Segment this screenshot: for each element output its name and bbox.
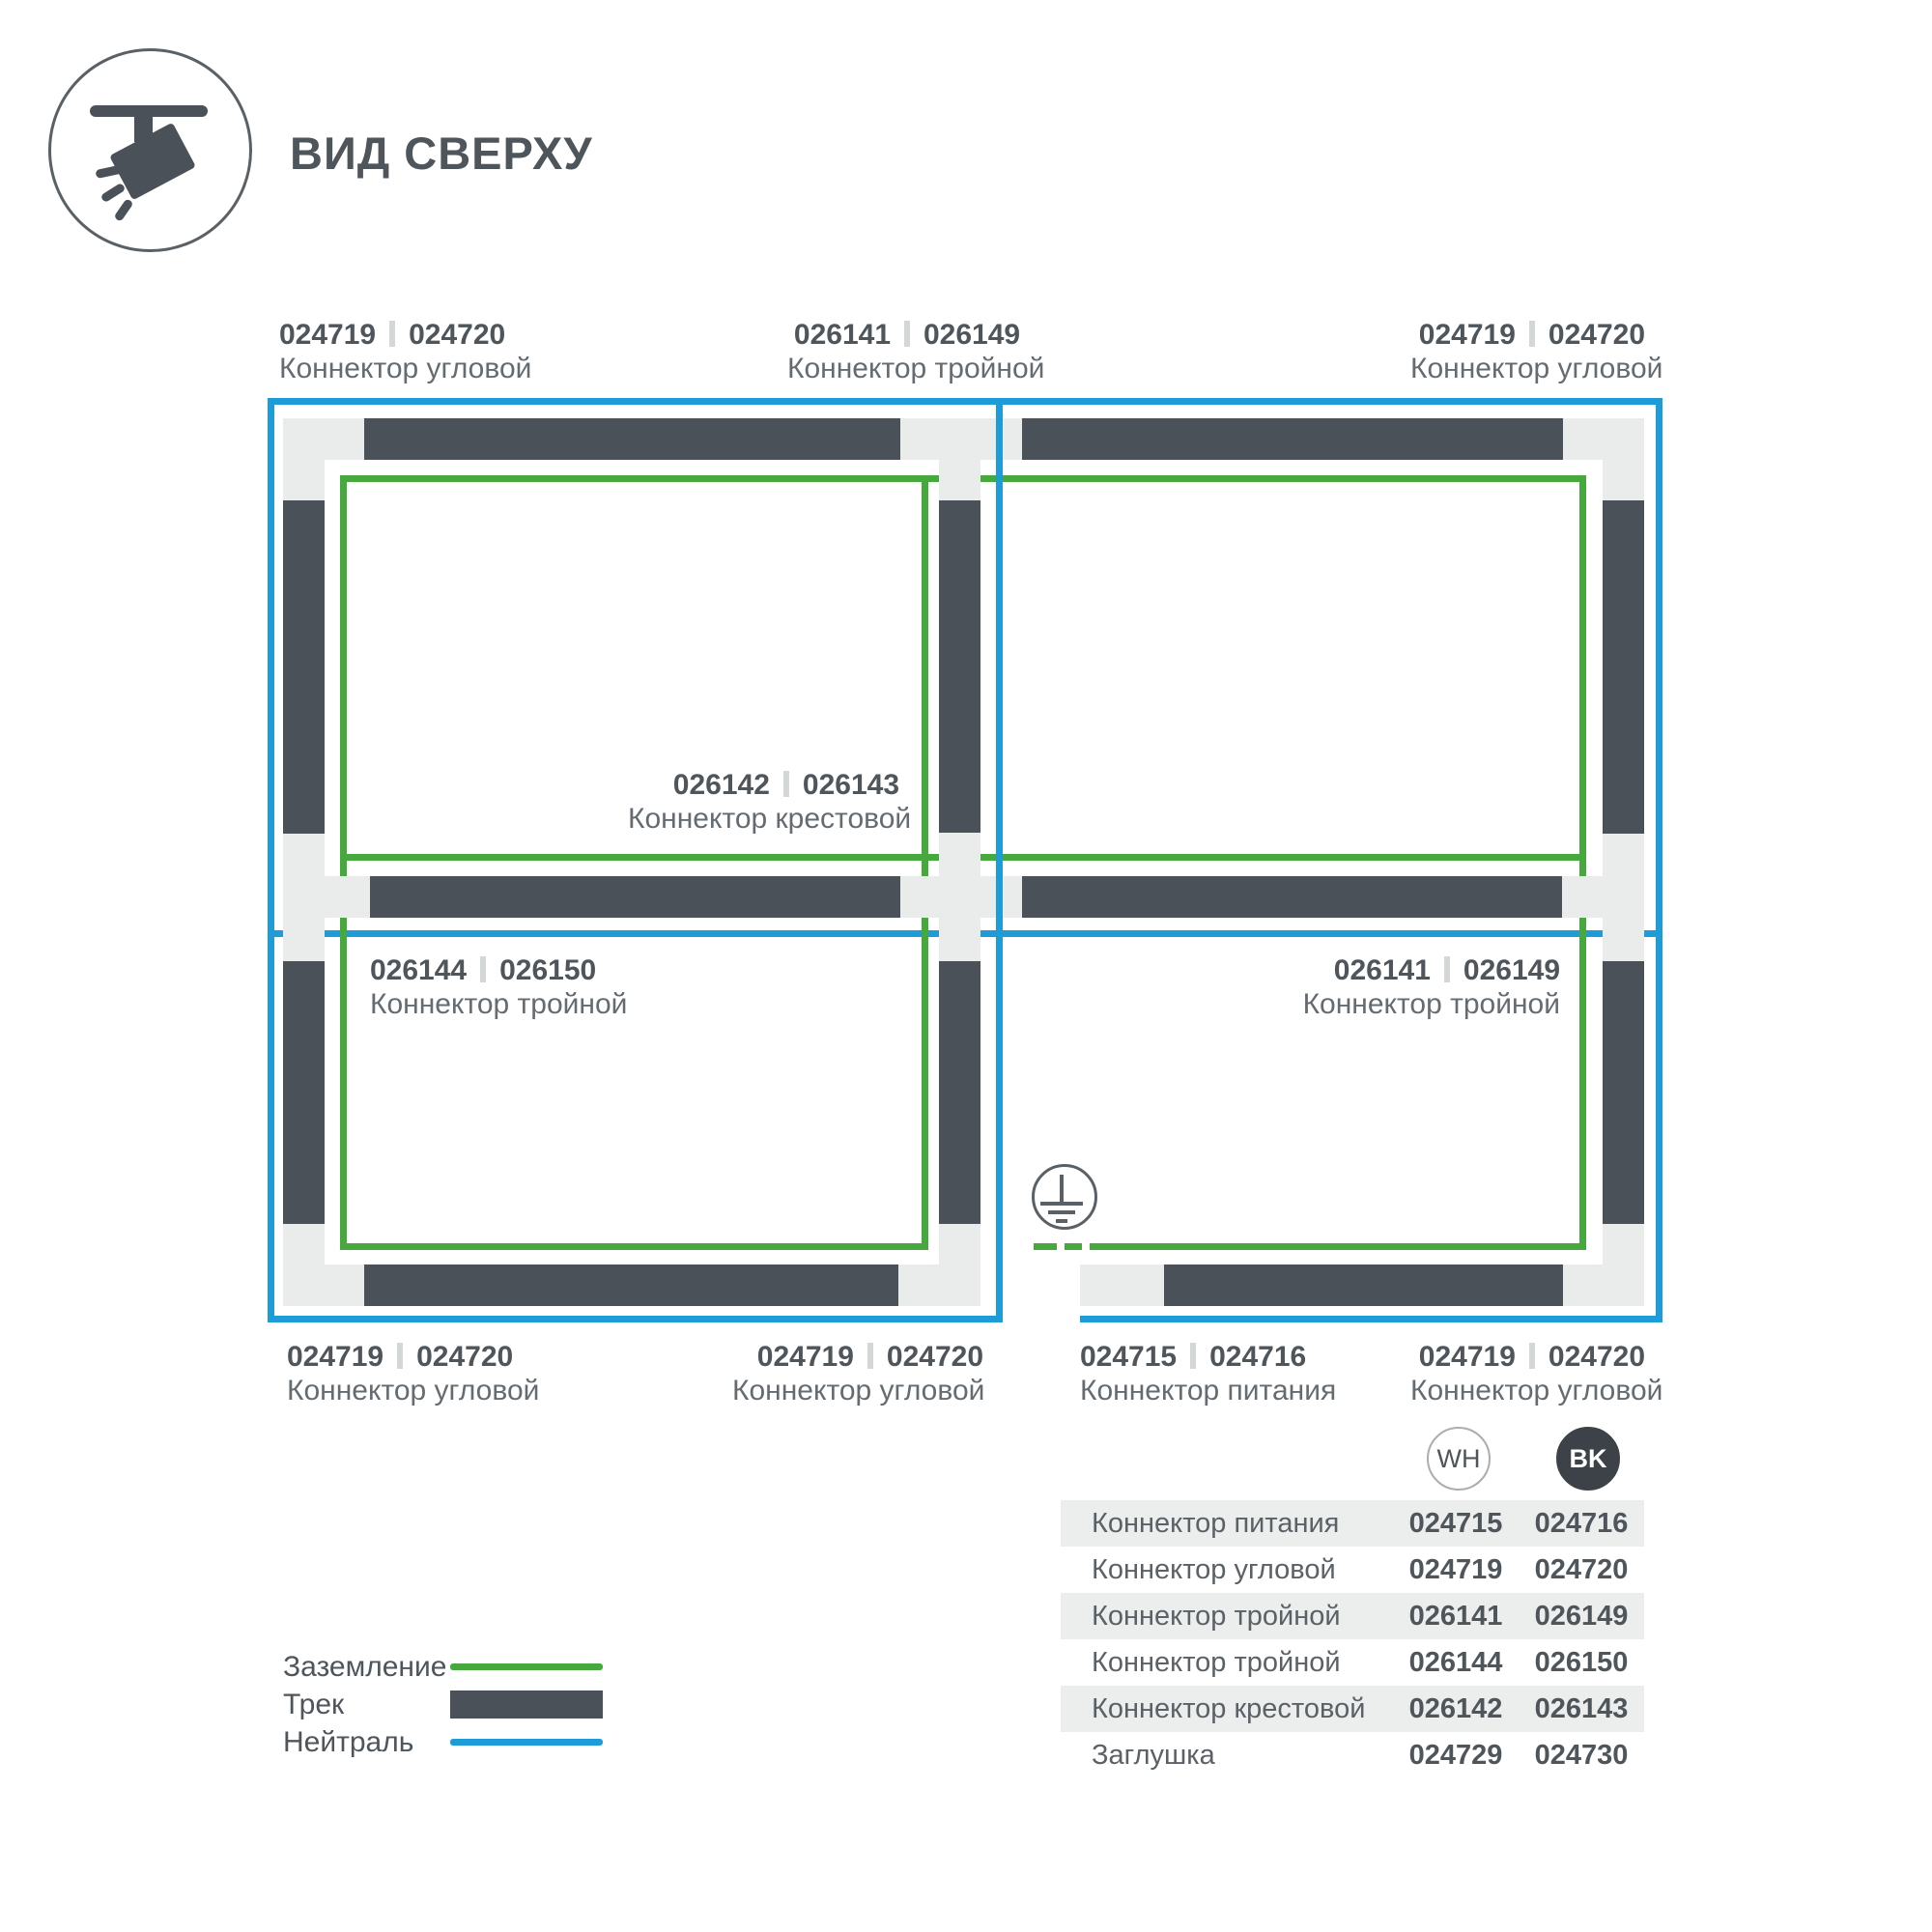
cross-connector (900, 876, 1022, 918)
white-color-badge: WH (1427, 1427, 1491, 1491)
neutral-line (1080, 1316, 1662, 1322)
track-segment (1603, 961, 1644, 1224)
neutral-line (996, 398, 1003, 1322)
icon-light-ray (113, 198, 133, 222)
track-segment (364, 418, 900, 460)
corner-connector (898, 1264, 980, 1306)
track-segment (283, 499, 325, 834)
track-spotlight-icon (48, 48, 252, 252)
table-row: Коннектор угловой 024719 024720 (1061, 1547, 1644, 1593)
track-bar-swatch (450, 1690, 603, 1719)
earth-ground-icon (1056, 1219, 1067, 1223)
connector-label-top-left: 024719024720 Коннектор угловой (279, 319, 482, 385)
corner-connector (939, 1224, 980, 1264)
connector-label-center: 026142026143 Коннектор крестовой (628, 769, 899, 836)
legend: Заземление Трек Нейтраль (283, 1648, 611, 1761)
t-connector (325, 876, 370, 918)
table-row: Заглушка 024729 024730 (1061, 1732, 1644, 1778)
ground-line (922, 475, 928, 1250)
legend-item-ground: Заземление (283, 1648, 611, 1686)
ground-line (1090, 1243, 1586, 1250)
earth-ground-icon (1040, 1202, 1083, 1206)
track-segment (364, 1264, 898, 1306)
connector-label-bottom-middle: 024719024720 Коннектор угловой (732, 1341, 983, 1407)
connector-label-mid-left: 026144026150 Коннектор тройной (370, 954, 660, 1021)
cross-connector (939, 833, 980, 876)
ground-line-dash (1065, 1243, 1082, 1250)
t-connector (283, 834, 325, 961)
power-connector (1080, 1264, 1164, 1306)
track-segment (1022, 418, 1563, 460)
neutral-line (268, 398, 274, 1322)
connector-label-bottom-right: 024719024720 Коннектор угловой (1410, 1341, 1645, 1407)
connector-label-top-middle: 026141026149 Коннектор тройной (787, 319, 1027, 385)
t-connector (900, 418, 1022, 460)
ground-line-dash (1034, 1243, 1057, 1250)
corner-connector (1603, 460, 1644, 500)
corner-connector (283, 460, 325, 500)
corner-connector (283, 1224, 325, 1264)
track-segment (939, 961, 980, 1224)
table-row: Коннектор тройной 026144 026150 (1061, 1639, 1644, 1686)
track-segment (1022, 876, 1562, 918)
earth-ground-icon (1060, 1175, 1064, 1202)
legend-item-track: Трек (283, 1686, 611, 1723)
corner-connector (283, 1264, 364, 1306)
connector-label-top-right: 024719024720 Коннектор угловой (1410, 319, 1645, 385)
connector-label-bottom-left: 024719024720 Коннектор угловой (287, 1341, 511, 1407)
corner-connector (1563, 1264, 1644, 1306)
table-color-header: WH BK (1061, 1427, 1644, 1489)
track-segment (283, 961, 325, 1224)
neutral-line (268, 1316, 1003, 1322)
connector-label-mid-right: 026141026149 Коннектор тройной (1270, 954, 1560, 1021)
page-title: ВИД СВЕРХУ (290, 127, 593, 180)
neutral-line (268, 398, 1662, 405)
connector-label-power: 024715024716 Коннектор питания (1080, 1341, 1350, 1407)
black-color-badge: BK (1556, 1427, 1620, 1491)
corner-connector (1563, 418, 1644, 460)
track-segment (1164, 1264, 1563, 1306)
corner-connector (1603, 1224, 1644, 1264)
neutral-line (1656, 398, 1662, 1322)
legend-item-neutral: Нейтраль (283, 1723, 611, 1761)
ground-line (340, 1243, 928, 1250)
track-segment (939, 499, 980, 833)
neutral-line-swatch (450, 1739, 603, 1746)
track-segment (370, 876, 900, 918)
ground-line-swatch (450, 1663, 603, 1670)
earth-ground-icon (1048, 1210, 1075, 1214)
track-segment (1603, 499, 1644, 834)
ground-line (1579, 475, 1586, 1250)
corner-connector (283, 418, 364, 460)
t-connector (1562, 876, 1603, 918)
t-connector (939, 460, 980, 500)
t-connector (1603, 834, 1644, 961)
table-row: Коннектор питания 024715 024716 (1061, 1500, 1644, 1547)
table-row: Коннектор тройной 026141 026149 (1061, 1593, 1644, 1639)
parts-table: Коннектор питания 024715 024716 Коннекто… (1061, 1500, 1644, 1778)
icon-light-ray (100, 183, 127, 203)
ground-line (340, 475, 347, 1250)
table-row: Коннектор крестовой 026142 026143 (1061, 1686, 1644, 1732)
page: ВИД СВЕРХУ (0, 0, 1932, 1932)
cross-connector (939, 918, 980, 961)
